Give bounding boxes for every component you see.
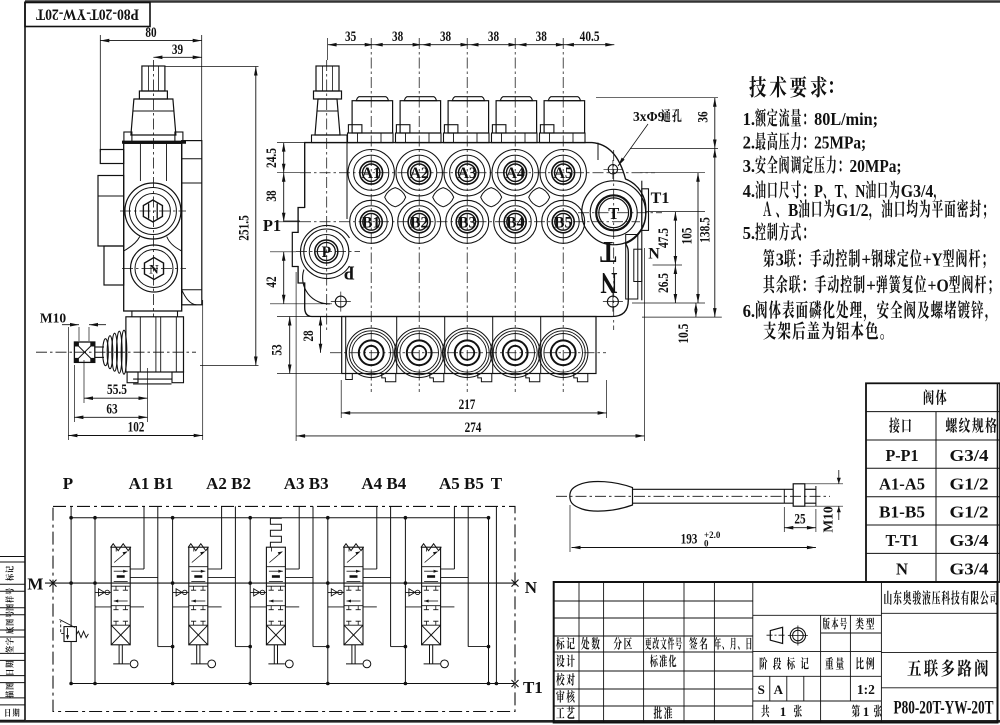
svg-text:G1/2: G1/2 xyxy=(950,474,989,493)
svg-text:26.5: 26.5 xyxy=(656,273,672,293)
svg-text:+Y: +Y xyxy=(923,250,943,270)
svg-text:A3 B3: A3 B3 xyxy=(284,474,329,493)
svg-text:M10: M10 xyxy=(40,311,66,326)
svg-text:N: N xyxy=(896,559,908,578)
svg-text:G3/4: G3/4 xyxy=(950,559,989,578)
svg-text:P80-20T-YW-20T: P80-20T-YW-20T xyxy=(894,699,994,719)
svg-text:P1: P1 xyxy=(263,216,281,235)
svg-text:38: 38 xyxy=(440,29,451,45)
svg-text:P: P xyxy=(63,474,73,493)
svg-text:42: 42 xyxy=(264,276,280,287)
svg-text:T1: T1 xyxy=(651,190,670,207)
svg-text:A5 B5: A5 B5 xyxy=(439,474,484,493)
svg-text:10.5: 10.5 xyxy=(676,324,692,344)
svg-text:3: 3 xyxy=(776,250,784,270)
svg-text:A: A xyxy=(774,682,784,697)
svg-text:25: 25 xyxy=(794,512,805,528)
svg-text:63: 63 xyxy=(106,402,117,418)
svg-text:38: 38 xyxy=(488,29,499,45)
svg-text:N: N xyxy=(149,262,159,277)
svg-text:T-T1: T-T1 xyxy=(886,531,919,550)
svg-text:A3: A3 xyxy=(458,165,477,182)
svg-text:53: 53 xyxy=(270,344,286,355)
svg-text:A1 B1: A1 B1 xyxy=(129,474,174,493)
svg-text:B5: B5 xyxy=(554,214,572,231)
svg-text:1.: 1. xyxy=(743,109,756,129)
svg-text:T: T xyxy=(491,474,503,493)
svg-text:A1: A1 xyxy=(362,165,381,182)
svg-text:80L/min;: 80L/min; xyxy=(814,109,878,129)
svg-text:4.: 4. xyxy=(743,181,756,201)
svg-text:B: B xyxy=(788,200,798,220)
svg-text:G3/4: G3/4 xyxy=(950,531,989,550)
svg-text:B1: B1 xyxy=(362,214,380,231)
svg-text:193: 193 xyxy=(681,532,698,548)
svg-text:A2: A2 xyxy=(410,165,429,182)
svg-text:P80-20T-YW-20T: P80-20T-YW-20T xyxy=(36,5,139,22)
svg-text:38: 38 xyxy=(264,190,280,201)
svg-text:55.5: 55.5 xyxy=(107,382,127,398)
svg-text:G3/4: G3/4 xyxy=(950,446,989,465)
svg-text:G1/2: G1/2 xyxy=(836,200,869,220)
svg-text:A5: A5 xyxy=(554,165,573,182)
svg-text:0: 0 xyxy=(704,539,709,549)
svg-text:+: + xyxy=(861,250,871,270)
svg-text:A4 B4: A4 B4 xyxy=(361,474,406,493)
svg-text:P-P1: P-P1 xyxy=(886,446,919,465)
svg-text:+O: +O xyxy=(928,276,949,296)
svg-text:M10: M10 xyxy=(820,506,835,532)
svg-text:G1/2: G1/2 xyxy=(950,503,989,522)
svg-text:20MPa;: 20MPa; xyxy=(850,156,902,176)
svg-text:102: 102 xyxy=(128,420,145,436)
svg-text:28: 28 xyxy=(301,330,317,341)
svg-text:N: N xyxy=(648,246,660,263)
svg-text:38: 38 xyxy=(392,29,403,45)
svg-text:105: 105 xyxy=(680,228,696,245)
svg-text:A1-A5: A1-A5 xyxy=(879,474,925,493)
svg-text:T: T xyxy=(600,235,617,270)
svg-text:B2: B2 xyxy=(410,214,428,231)
svg-text:P: P xyxy=(814,181,823,201)
svg-text:B1-B5: B1-B5 xyxy=(879,503,925,522)
svg-text:36: 36 xyxy=(696,111,712,122)
svg-text:N: N xyxy=(525,578,538,597)
svg-text:35: 35 xyxy=(345,29,356,45)
svg-text:+: + xyxy=(866,276,876,296)
svg-text:T: T xyxy=(608,204,619,223)
svg-text:P: P xyxy=(322,244,332,261)
svg-text:39: 39 xyxy=(172,42,183,58)
svg-text:P: P xyxy=(344,262,355,284)
svg-text:B4: B4 xyxy=(506,214,524,231)
svg-text:25MPa;: 25MPa; xyxy=(814,133,866,153)
svg-text:T1: T1 xyxy=(523,678,543,697)
svg-text:A2 B2: A2 B2 xyxy=(206,474,251,493)
svg-text:6.: 6. xyxy=(743,301,756,321)
svg-text:N: N xyxy=(855,181,865,201)
svg-text:3.: 3. xyxy=(743,156,756,176)
svg-text:40.5: 40.5 xyxy=(580,29,600,45)
svg-text:274: 274 xyxy=(465,420,482,436)
svg-text:3x: 3x xyxy=(633,109,647,124)
svg-text:24.5: 24.5 xyxy=(264,148,280,168)
svg-text:1: 1 xyxy=(863,704,870,719)
svg-text:5.: 5. xyxy=(743,223,756,243)
svg-text:251.5: 251.5 xyxy=(237,215,253,241)
svg-text:80: 80 xyxy=(145,25,156,41)
svg-text:138.5: 138.5 xyxy=(698,217,714,243)
svg-text:B3: B3 xyxy=(458,214,476,231)
svg-text:38: 38 xyxy=(536,29,547,45)
svg-text:S: S xyxy=(758,682,765,697)
svg-text:T: T xyxy=(835,181,844,201)
svg-text:N: N xyxy=(601,266,618,301)
svg-text:1:2: 1:2 xyxy=(857,682,875,697)
svg-text:G3/4: G3/4 xyxy=(901,181,934,201)
svg-text:217: 217 xyxy=(459,397,476,413)
svg-text:M: M xyxy=(27,575,43,594)
svg-text:2.: 2. xyxy=(743,133,756,153)
svg-text:A4: A4 xyxy=(506,165,525,182)
svg-text:1: 1 xyxy=(780,704,787,719)
